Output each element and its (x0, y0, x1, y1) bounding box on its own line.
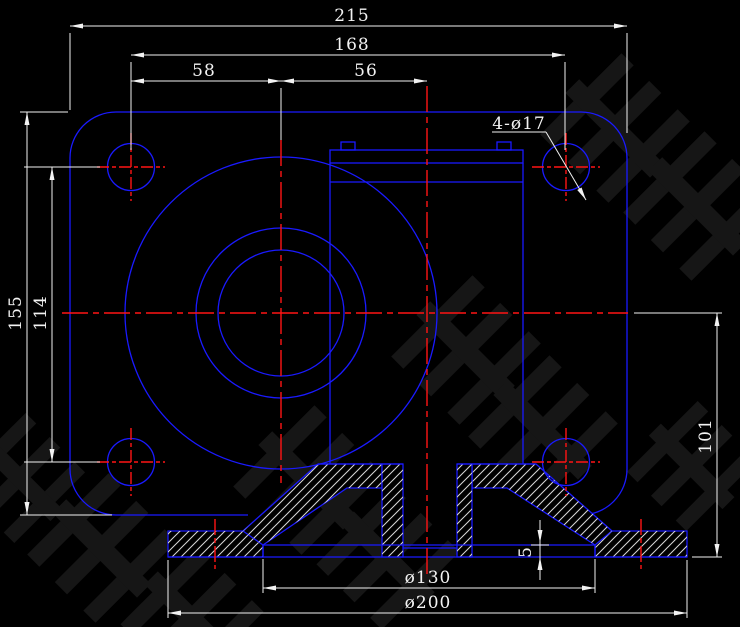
bore-right-wall-hatch (457, 464, 472, 557)
dim-overall-height: 155 (6, 112, 27, 515)
cad-drawing: 215 168 58 56 155 114 101 (0, 0, 740, 627)
dim-overall-width-label: 215 (334, 6, 369, 26)
cad-drawing-canvas: 215 168 58 56 155 114 101 (0, 0, 740, 627)
dim-center-right-label: 56 (354, 61, 378, 81)
dim-bolt-spacing-h-label: 168 (334, 35, 369, 55)
dim-bolt-spacing-h: 168 (131, 35, 565, 55)
dim-seat-dia: ø130 (263, 568, 595, 588)
dim-base-dia-label: ø200 (405, 593, 452, 613)
dim-seat-dia-label: ø130 (405, 568, 452, 588)
dim-center-left: 58 (131, 61, 281, 81)
dim-recess-depth: 5 (516, 520, 540, 580)
cap-lug-left (341, 142, 355, 150)
leader-bolt-holes-label: 4-ø17 (492, 114, 545, 134)
dim-overall-width: 215 (70, 6, 627, 26)
dim-bolt-spacing-v-label: 114 (31, 295, 51, 330)
dim-center-right: 56 (281, 61, 427, 81)
dim-base-height-label: 101 (696, 418, 716, 453)
dim-base-height: 101 (696, 313, 717, 557)
cap-lug-right (497, 142, 511, 150)
base-recess-outline (263, 545, 595, 557)
dim-recess-depth-label: 5 (516, 546, 536, 558)
dim-overall-height-label: 155 (6, 295, 26, 330)
right-slope-hatch (472, 464, 612, 545)
dim-center-left-label: 58 (192, 61, 216, 81)
plan-view-circles (108, 144, 590, 486)
bore-left-wall-hatch (382, 464, 403, 557)
dim-bolt-spacing-v: 114 (31, 167, 52, 462)
